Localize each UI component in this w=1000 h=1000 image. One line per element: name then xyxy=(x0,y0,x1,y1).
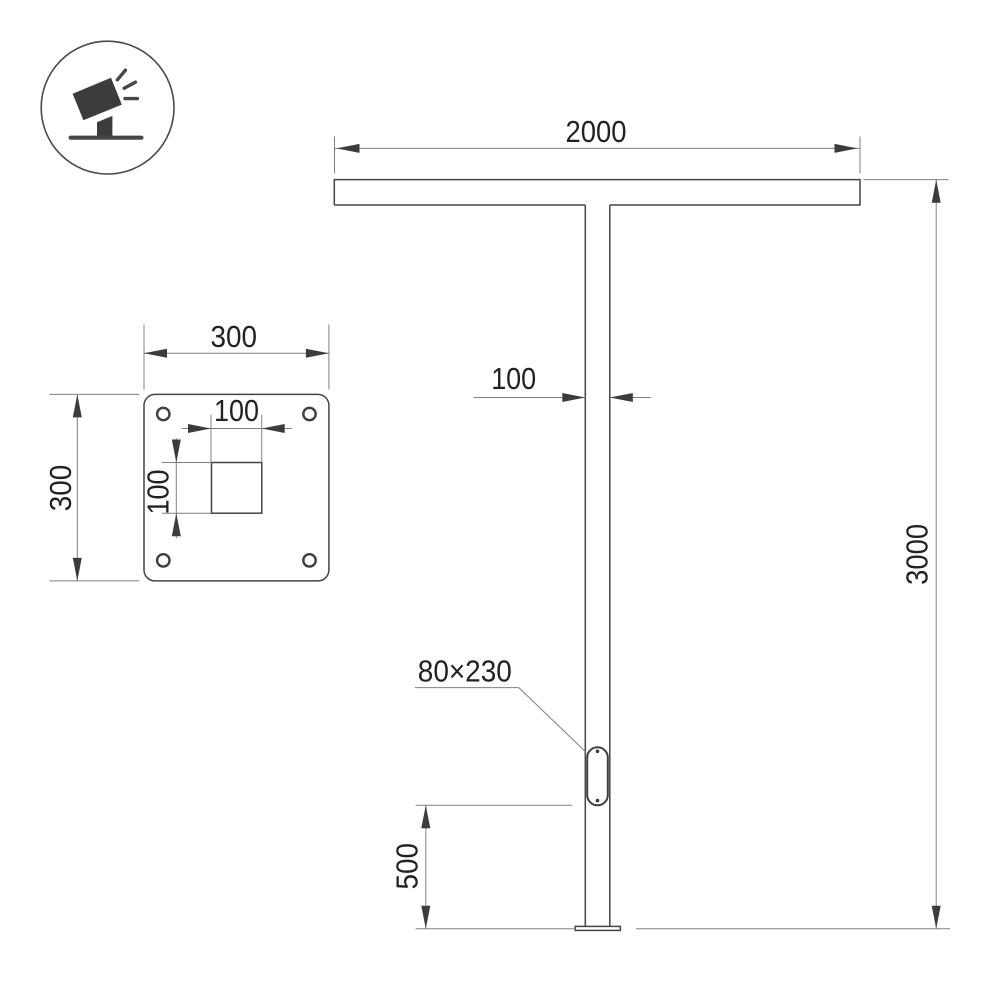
svg-text:500: 500 xyxy=(390,843,425,890)
svg-text:300: 300 xyxy=(211,319,258,354)
svg-text:100: 100 xyxy=(214,393,259,428)
svg-text:80×230: 80×230 xyxy=(418,654,512,689)
svg-text:100: 100 xyxy=(140,470,175,515)
svg-text:300: 300 xyxy=(43,465,78,512)
svg-text:3000: 3000 xyxy=(899,524,934,585)
svg-text:100: 100 xyxy=(491,361,536,396)
svg-text:2000: 2000 xyxy=(566,114,627,149)
